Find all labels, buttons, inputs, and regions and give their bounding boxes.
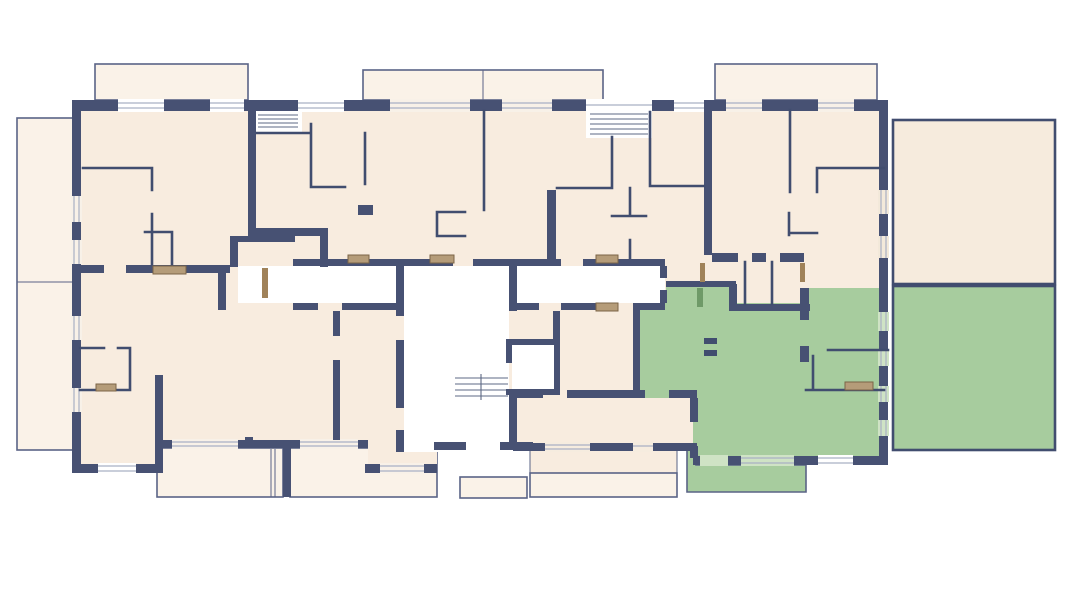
radiator <box>96 384 116 391</box>
unit-bedrooms[interactable] <box>806 288 888 465</box>
balcony-top-right <box>715 64 877 100</box>
radiator <box>596 255 618 263</box>
radiator <box>153 266 186 274</box>
stair-exit-door <box>466 441 500 451</box>
floor-plan-page <box>0 0 1066 600</box>
radiator <box>596 303 618 311</box>
radiator <box>845 382 873 390</box>
unit-hall[interactable] <box>640 303 806 398</box>
balcony-bottom-center <box>530 473 677 497</box>
floor-plan-canvas <box>0 0 1066 600</box>
balcony-left <box>17 118 76 450</box>
terrace-right-selected[interactable] <box>893 286 1055 450</box>
rear-landing <box>460 477 527 498</box>
unit-living-room[interactable] <box>693 398 806 465</box>
balcony-top-left <box>95 64 248 100</box>
radiator <box>348 255 369 263</box>
elevator-shaft <box>512 345 554 389</box>
balcony-bottom-left-1 <box>157 448 283 497</box>
balcony-door <box>700 455 728 466</box>
entrance-steps-west <box>254 111 302 133</box>
balcony-divider-wall <box>283 448 291 497</box>
terrace-right-upper <box>893 120 1055 284</box>
kitchen-fixture <box>704 338 717 344</box>
bottom-center-step <box>530 450 677 473</box>
kitchen-fixture <box>704 350 717 356</box>
stairwell <box>404 266 509 452</box>
door-leaf <box>800 263 805 282</box>
door-leaf <box>700 263 705 282</box>
door-leaf <box>262 268 268 298</box>
radiator <box>430 255 454 263</box>
door-leaf-selected <box>697 288 703 307</box>
